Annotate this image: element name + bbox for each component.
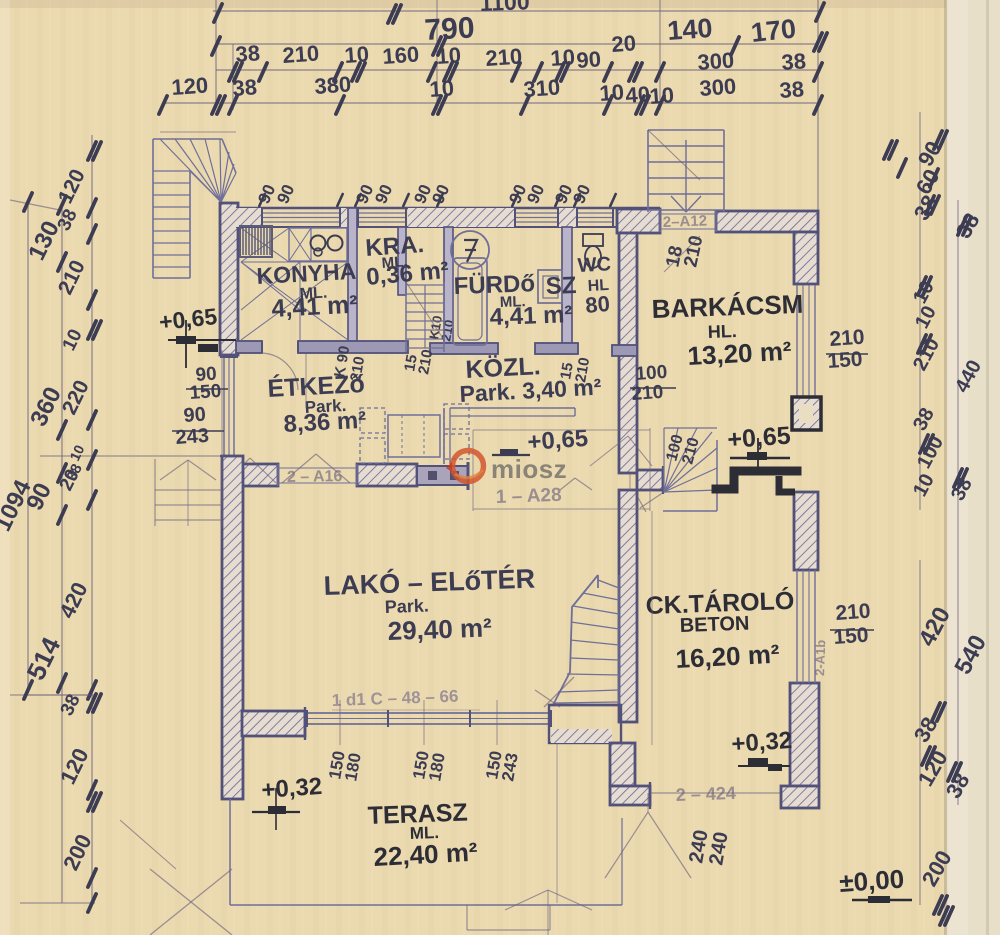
svg-text:2–A12: 2–A12 xyxy=(663,212,708,231)
svg-text:300: 300 xyxy=(699,73,737,101)
svg-text:KONYHA: KONYHA xyxy=(256,258,357,289)
svg-text:BARKÁCSM: BARKÁCSM xyxy=(651,289,804,324)
svg-text:2-A1b: 2-A1b xyxy=(812,639,828,676)
svg-text:120: 120 xyxy=(171,72,209,100)
svg-text:29,40 m²: 29,40 m² xyxy=(387,612,492,646)
svg-text:WC: WC xyxy=(577,253,611,277)
svg-text:38: 38 xyxy=(779,76,805,103)
svg-text:150: 150 xyxy=(833,624,870,649)
svg-text:210: 210 xyxy=(631,382,664,405)
svg-text:170: 170 xyxy=(749,13,797,48)
svg-text:150: 150 xyxy=(189,381,222,404)
svg-text:16,20 m²: 16,20 m² xyxy=(675,639,781,674)
svg-text:Park.: Park. xyxy=(384,595,429,617)
svg-text:+0,65: +0,65 xyxy=(726,422,791,454)
svg-text:SZ: SZ xyxy=(545,272,577,300)
svg-text:±0,00: ±0,00 xyxy=(838,864,905,898)
svg-text:80: 80 xyxy=(584,291,611,318)
svg-text:90: 90 xyxy=(576,46,602,73)
svg-text:8,36 m²: 8,36 m² xyxy=(283,407,367,438)
svg-text:+0,32: +0,32 xyxy=(731,727,793,758)
svg-text:+0,65: +0,65 xyxy=(527,425,589,456)
svg-text:210: 210 xyxy=(835,600,872,625)
svg-text:380: 380 xyxy=(314,71,352,99)
svg-text:13,20 m²: 13,20 m² xyxy=(687,336,793,371)
svg-text:150: 150 xyxy=(827,348,864,373)
svg-text:210: 210 xyxy=(282,40,320,68)
svg-text:BETON: BETON xyxy=(679,613,749,637)
svg-text:160: 160 xyxy=(382,41,420,69)
svg-text:20: 20 xyxy=(611,30,637,57)
svg-text:4,41 m²: 4,41 m² xyxy=(489,301,573,331)
svg-text:300: 300 xyxy=(697,47,735,75)
svg-text:100: 100 xyxy=(635,362,668,385)
svg-text:38: 38 xyxy=(781,48,807,75)
svg-text:790: 790 xyxy=(424,11,476,47)
svg-text:140: 140 xyxy=(666,13,713,46)
svg-text:243: 243 xyxy=(175,425,210,449)
svg-text:90: 90 xyxy=(183,403,207,426)
svg-text:+0,32: +0,32 xyxy=(261,773,323,804)
svg-text:10: 10 xyxy=(599,79,625,106)
svg-text:4,41 m²: 4,41 m² xyxy=(271,291,359,323)
svg-text:1100: 1100 xyxy=(479,0,530,16)
svg-text:1 – A28: 1 – A28 xyxy=(495,485,562,508)
svg-text:miosz: miosz xyxy=(491,454,567,484)
svg-text:22,40 m²: 22,40 m² xyxy=(373,837,479,872)
svg-text:2 – 424: 2 – 424 xyxy=(675,783,736,805)
